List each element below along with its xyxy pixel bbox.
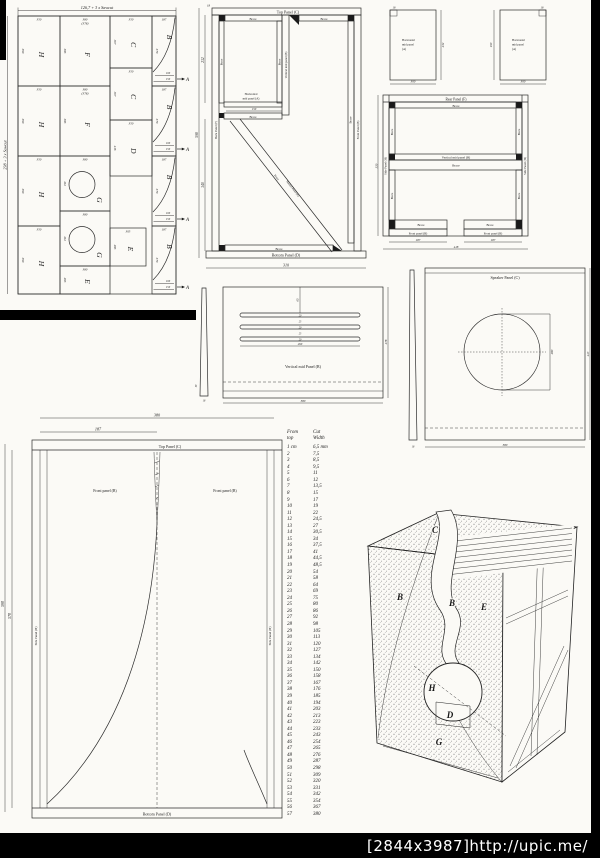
section-dim: 100	[166, 212, 171, 215]
section-arrow-label: A	[185, 78, 190, 83]
xs-brace-label: Brace	[321, 17, 329, 21]
xs-brace-label: Brace	[276, 247, 284, 251]
ft-top-panel-label: Top Panel (C)	[159, 444, 182, 449]
cutting-panel-letter: H	[37, 260, 46, 267]
xs-depth-dim: 310	[283, 263, 289, 268]
cutting-dim-width: 305	[126, 230, 131, 234]
cutting-dim-height: 412	[63, 236, 67, 241]
section-dim: 150	[166, 78, 171, 81]
horizontal-mid-panels-diagram: 18 Horizontal mid panel (A) 232 300 18 H…	[378, 2, 592, 90]
tv-side-panel-label: Side Panel (H)	[383, 157, 387, 175]
cutting-panel-letter: F	[83, 51, 92, 57]
cutting-dim-width: 350	[129, 18, 134, 22]
tv-brace-label: Brace	[452, 164, 460, 168]
xs-thickness-dim: 18	[207, 4, 211, 8]
section-arrow-label: A	[185, 218, 190, 223]
sketch-letter-b: B	[448, 598, 455, 608]
cutting-panel-letter: G	[95, 252, 104, 258]
hmid-label: (A)	[402, 47, 406, 51]
vm-edge-dim: 18	[203, 400, 206, 403]
cutting-panel-letter: C	[129, 42, 138, 48]
tv-front-panel-label: Front panel (B)	[484, 231, 503, 235]
tv-corner-block	[516, 154, 522, 160]
xs-brace-label: Brace	[220, 58, 223, 65]
vm-height-dim: 278	[384, 339, 388, 344]
tv-corner-block	[516, 220, 522, 229]
cutting-dim-height: 590	[21, 49, 25, 54]
cutting-horn-curve	[153, 158, 175, 213]
cutting-dim-width: 350	[37, 18, 42, 22]
tv-half-dim: 187	[491, 238, 496, 242]
section-dim: 100	[166, 142, 171, 145]
sp-panel-label: Speaker Panel (C)	[490, 275, 520, 280]
vm-panel-outline	[223, 287, 383, 398]
xs-corner-block	[219, 113, 224, 118]
sp-cutout-dim: 280	[550, 349, 554, 354]
cutting-panel-letter: B	[165, 35, 174, 40]
cutting-dim-width: 380	[83, 268, 88, 272]
cutting-panel-letter: D	[129, 147, 138, 154]
hmid-notch-dim: 18	[393, 7, 396, 10]
xs-horizontal-mid-label: mid panel (A)	[243, 97, 260, 101]
hmid-notch	[539, 10, 546, 16]
cutting-dim-width-alt: (378)	[82, 22, 89, 26]
cutting-dim-width: 350	[129, 70, 134, 74]
xs-top-panel-label: Top Panel (C)	[277, 10, 300, 15]
xs-slanted-panel	[230, 119, 342, 252]
sketch-letter-h: H	[427, 683, 436, 693]
vm-panel-label: Vertical mid Panel (B)	[285, 364, 322, 369]
ft-front-panel-label: Front panel (B)	[213, 489, 237, 493]
sp-width-dim: 380	[503, 443, 508, 447]
hmid1-height-dim: 232	[441, 42, 445, 47]
cutting-dim-height: 570	[155, 189, 159, 194]
cutting-dim-width: 350	[37, 158, 42, 162]
section-arrow-icon	[182, 286, 185, 289]
cutting-horn-curve	[153, 228, 175, 281]
cutting-panel-letter: H	[37, 51, 46, 58]
ft-outer-height-dim: 590	[0, 601, 5, 607]
tv-half-dim: 187	[416, 238, 421, 242]
cutting-panel-letter: C	[129, 94, 138, 100]
cutting-dim-height: 412	[63, 181, 67, 186]
cutting-dim-width: 187	[162, 228, 167, 232]
section-dim: 150	[166, 148, 171, 151]
assembled-cabinet-sketch: CBBEHDG	[358, 498, 600, 810]
sp-edge-dim: 18	[412, 446, 415, 449]
tv-brace-label: Brace	[518, 192, 521, 199]
sketch-letter-c: C	[432, 525, 439, 535]
scan-artifact-right-edge	[591, 0, 600, 858]
cutting-speaker-hole	[69, 172, 95, 198]
section-arrow-icon	[182, 148, 185, 151]
hmid1-width-dim: 300	[411, 80, 416, 84]
xs-brace-label: Brace	[349, 116, 353, 124]
ft-front-panel-label: Front panel (B)	[93, 489, 117, 493]
cutting-dim-height: 570	[155, 49, 159, 54]
hmid-label: Horizontal	[512, 38, 525, 42]
tv-corner-block	[389, 102, 395, 108]
front-panel-template-diagram: 380 187 590 570 Top Panel (C) Side Panel…	[0, 406, 292, 834]
ft-dimension-lines	[5, 418, 274, 812]
cutting-dim-height: 416	[113, 146, 117, 151]
section-arrow-icon	[182, 78, 185, 81]
vm-edge-strip	[200, 288, 208, 396]
cutting-dim-width: 350	[37, 88, 42, 92]
cutting-dim-width: 380	[83, 213, 88, 217]
section-dim: 100	[166, 72, 171, 75]
cutting-dimension-lines	[8, 8, 177, 295]
cutting-dim-width: 187	[162, 158, 167, 162]
cutting-dim-height: 570	[155, 119, 159, 124]
cutting-dim-width: 187	[162, 88, 167, 92]
xs-right-brace	[348, 21, 354, 243]
top-view-diagram: Rear Panel (F) Brace Side Panel (H) Side…	[376, 86, 536, 258]
sketch-letter-d: D	[446, 710, 454, 720]
tv-brace-label: Brace	[418, 223, 426, 227]
xs-brace-label: Brace	[250, 17, 258, 21]
cross-section-diagram: Top Panel (C) Back Panel (F) Front Panel…	[196, 0, 378, 282]
cut-table-header-cut-width: Cut Width	[313, 430, 359, 441]
sp-crosshair	[458, 308, 546, 396]
xs-front-panel-label: Front Panel (B)	[356, 121, 360, 140]
cutting-panel-letter: H	[37, 121, 46, 128]
sp-edge-strip	[409, 270, 417, 440]
tv-corner-block	[516, 102, 522, 108]
cutting-panel-letter: B	[165, 244, 174, 249]
cutting-panel-letter: G	[95, 197, 104, 203]
cutting-dim-width: 350	[37, 228, 42, 232]
xs-corner-block	[289, 15, 299, 25]
xs-back-panel-label: Back Panel (F)	[214, 121, 218, 139]
cutting-panel-letter: E	[83, 278, 92, 284]
section-dim: 100	[166, 280, 171, 283]
vertical-mid-panel-diagram: 50 18 65 20 25 20 25 20 260 Vertical mid…	[192, 280, 392, 406]
hmid2-width-dim: 300	[521, 80, 526, 84]
vm-offset-dim: 65	[296, 298, 300, 302]
vm-width-dim: 380	[301, 399, 306, 403]
xs-corner-block	[219, 15, 225, 21]
cut-width-table: From top Cut Width 1 cm6,5 mm27,538,549,…	[287, 430, 361, 818]
hmid-notch	[390, 10, 397, 16]
section-arrow-label: A	[185, 148, 190, 153]
scan-artifact-left-edge	[0, 0, 6, 60]
section-arrow-icon	[182, 218, 185, 221]
tv-front-panel-label: Front panel (B)	[409, 231, 428, 235]
xs-bottom-panel-label: Bottom Panel (D)	[272, 253, 301, 258]
cutting-dim-height: 590	[21, 119, 25, 124]
hmid-notch-dim: 18	[541, 7, 544, 10]
cutting-dim-height: 585	[63, 49, 67, 54]
vm-slot-dim: 25	[299, 320, 302, 323]
xs-total-height-dim: 598	[195, 132, 199, 138]
ft-total-width-dim: 380	[154, 413, 161, 418]
tv-brace-label: Brace	[391, 192, 394, 199]
ft-half-width-dim: 187	[95, 427, 102, 432]
cutting-dim-height: 570	[155, 258, 159, 263]
ft-side-panel-label: Side Panel (H)	[268, 627, 272, 646]
cut-table-header-from-top: From top	[287, 430, 313, 441]
cutting-panel-letter: B	[165, 105, 174, 110]
hmid-label: mid panel	[512, 43, 524, 47]
cut-table-header: From top Cut Width	[287, 430, 361, 441]
cut-table-row: 57380	[287, 812, 361, 819]
cutting-panel-letter: B	[165, 175, 174, 180]
cutting-panel-letter: E	[126, 246, 135, 252]
sketch-letter-b: B	[396, 592, 403, 602]
cutting-panels: H350590H350590H350590H350590F380(378)585…	[18, 16, 190, 294]
hmid-label: Horizontal	[402, 38, 415, 42]
cutting-dim-height: 307	[113, 92, 117, 97]
watermark-band: [2844x3987]http://upic.me/	[0, 833, 600, 858]
xs-mid-width-dim: 150	[252, 107, 257, 111]
xs-horizontal-mid-label: Horizontal	[245, 92, 258, 96]
sp-height-dim: 413	[586, 351, 590, 356]
hmid2-height-dim: 190	[489, 42, 493, 47]
xs-corner-block	[348, 15, 354, 21]
hmid-label: (A)	[512, 47, 516, 51]
tv-brace-label: Brace	[487, 223, 495, 227]
cutting-horn-curve	[153, 88, 175, 143]
tv-side-panel-label: Side Panel (H)	[523, 157, 527, 175]
speaker-panel-diagram: 18 Speaker Panel (C) 280 413 380	[404, 256, 600, 452]
hmid-label: mid panel	[402, 43, 414, 47]
vm-slot-length-dim: 260	[298, 342, 303, 346]
xs-lower-dim: 340	[201, 182, 205, 188]
cutting-dim-width: 350	[129, 122, 134, 126]
cutting-dim-width: 187	[162, 18, 167, 22]
tv-brace-label: Brace	[518, 128, 521, 135]
section-dim: 150	[166, 218, 171, 221]
cutting-horn-curve	[153, 18, 175, 73]
cutting-dim-height: 585	[63, 119, 67, 124]
tv-brace-label: Brace	[453, 104, 461, 108]
cutting-dim-width: 380	[83, 158, 88, 162]
ft-inner-height-dim: 570	[7, 613, 12, 619]
ft-bottom-panel-label: Bottom Panel (D)	[143, 812, 172, 817]
tv-brace-label: Brace	[391, 128, 394, 135]
vm-edge-dim: 50	[195, 384, 198, 387]
cutting-dim-width-alt: (378)	[82, 92, 89, 96]
sketch-letter-e: E	[480, 602, 487, 612]
xs-brace-label: Brace	[250, 115, 258, 119]
cutting-sheet-height-dim: 238 + 3 x Sawcut	[3, 139, 8, 169]
cutting-panel-letter: H	[37, 191, 46, 198]
xs-brace-label: Brace	[279, 58, 282, 65]
section-dim: 150	[166, 286, 171, 289]
tv-dimension-lines	[378, 95, 528, 249]
vm-slot-dim: 25	[299, 332, 302, 335]
sp-speaker-cutout	[464, 314, 540, 390]
xs-vertical-mid-label: Vertical mid panel (B)	[284, 52, 288, 79]
cutting-dim-height: 265	[63, 278, 67, 283]
blueprint-scan-page: 126,7 + 3 x Sawcut 238 + 3 x Sawcut H350…	[0, 0, 600, 858]
cutting-dim-height: 285	[113, 245, 117, 250]
cutting-panel-letter: F	[83, 121, 92, 127]
xs-corner-block	[219, 245, 225, 251]
xs-upper-dim: 232	[201, 57, 205, 63]
section-arrow-label: A	[185, 286, 190, 291]
tv-corner-block	[389, 154, 395, 160]
tv-total-dim: 418	[454, 245, 459, 249]
watermark-text: [2844x3987]http://upic.me/	[367, 837, 588, 855]
cut-table-body: 1 cm6,5 mm27,538,549,5511612713,58159171…	[287, 445, 361, 818]
tv-vertical-mid-label: Vertical mid panel (B)	[442, 156, 470, 160]
tv-corner-block	[389, 220, 395, 229]
cutting-dim-height: 590	[21, 189, 25, 194]
cutting-dim-height: 590	[21, 258, 25, 263]
cutting-dim-height: 307	[113, 40, 117, 45]
sketch-letter-g: G	[436, 737, 443, 747]
tv-depth-dim: 350	[374, 163, 378, 168]
scan-artifact-under-cutting	[0, 310, 196, 320]
ft-side-panel-label: Side Panel (H)	[34, 627, 38, 646]
sp-panel-outline	[425, 268, 585, 440]
tv-rear-panel-label: Rear Panel (F)	[446, 97, 468, 101]
cutting-layout-diagram: 126,7 + 3 x Sawcut 238 + 3 x Sawcut H350…	[4, 2, 199, 310]
cutting-speaker-hole	[69, 227, 95, 253]
cutting-sheet-width-dim: 126,7 + 3 x Sawcut	[81, 5, 114, 11]
